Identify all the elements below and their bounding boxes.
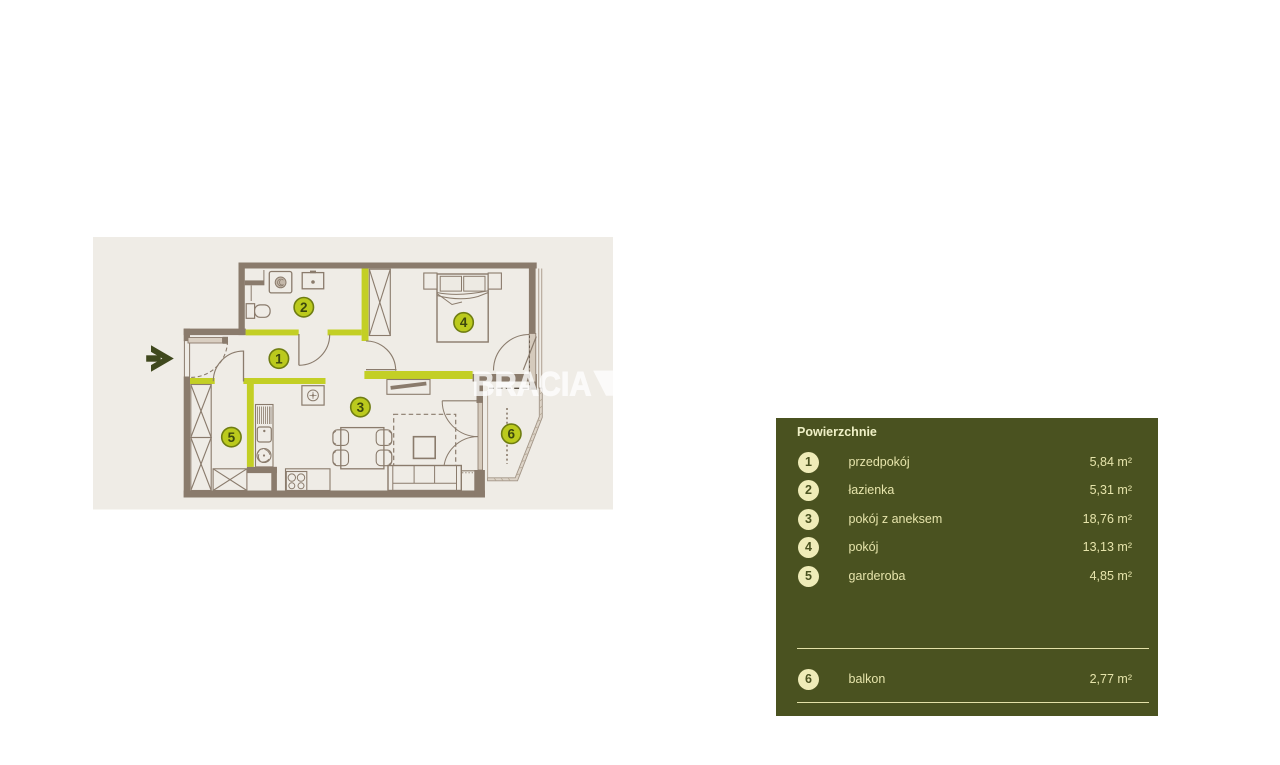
- svg-text:1: 1: [275, 351, 283, 366]
- svg-text:3: 3: [357, 400, 365, 415]
- svg-text:6: 6: [508, 427, 516, 442]
- svg-text:2: 2: [300, 300, 308, 315]
- svg-text:5: 5: [228, 430, 236, 445]
- svg-text:4: 4: [460, 315, 468, 330]
- svg-text:BRACIA: BRACIA: [473, 366, 592, 404]
